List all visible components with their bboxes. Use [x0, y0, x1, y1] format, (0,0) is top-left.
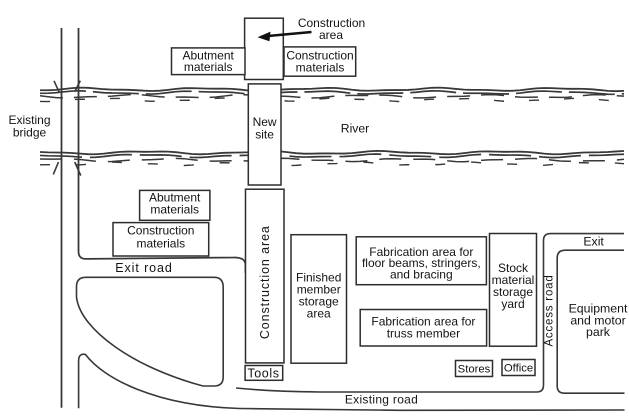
svg-text:Construction: Construction [127, 224, 194, 238]
svg-text:and bracing: and bracing [390, 267, 453, 281]
svg-text:Exit road: Exit road [115, 261, 172, 275]
svg-text:Existing road: Existing road [345, 393, 418, 407]
svg-text:materials: materials [296, 61, 345, 75]
svg-text:area: area [319, 28, 343, 42]
svg-text:materials: materials [136, 237, 185, 251]
svg-text:Exit: Exit [583, 234, 604, 248]
svg-text:Office: Office [504, 363, 533, 375]
svg-text:Stores: Stores [458, 363, 491, 375]
svg-text:materials: materials [184, 60, 233, 74]
svg-text:Access road: Access road [543, 274, 555, 346]
svg-text:materials: materials [150, 203, 199, 217]
svg-text:bridge: bridge [13, 125, 47, 139]
svg-text:site: site [255, 128, 274, 142]
svg-text:area: area [307, 307, 331, 321]
svg-text:park: park [586, 325, 611, 339]
svg-text:Tools: Tools [247, 366, 279, 380]
svg-text:Construction area: Construction area [258, 225, 272, 339]
svg-text:truss member: truss member [387, 326, 460, 340]
svg-text:yard: yard [501, 297, 524, 311]
svg-text:River: River [341, 121, 369, 135]
